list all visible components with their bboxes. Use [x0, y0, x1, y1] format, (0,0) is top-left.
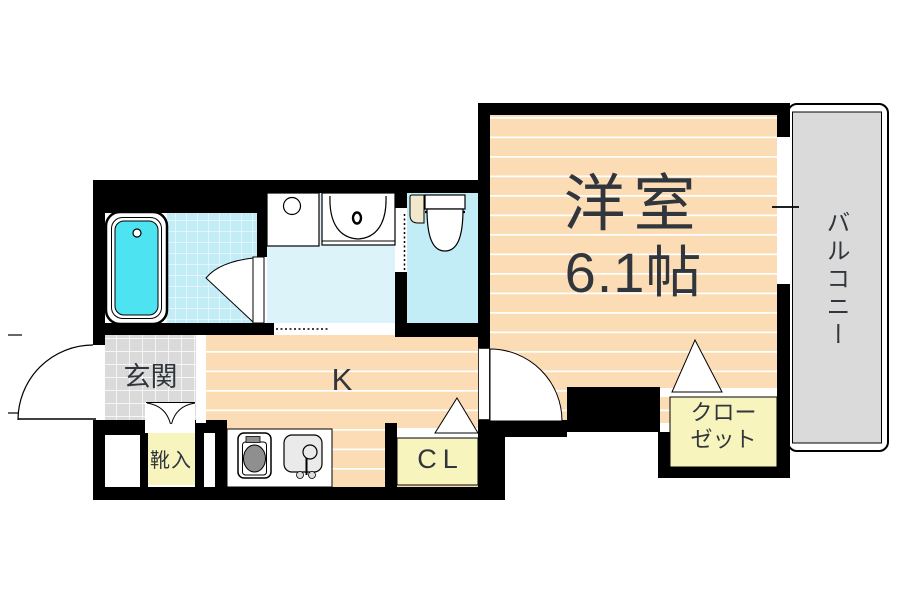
closet-label: クロー ゼット — [670, 399, 777, 453]
toilet-door-opening — [395, 208, 407, 272]
entry-side-space — [105, 433, 140, 487]
entrance-label: 玄関 — [105, 364, 196, 391]
front-door-opening — [93, 345, 105, 420]
entrance-step-strip — [196, 335, 206, 423]
balcony-label: バルコニー — [823, 160, 847, 400]
wash-basin — [322, 193, 395, 245]
kitchen-sink — [284, 435, 322, 479]
floor-plan: 洋室 6.1帖 バルコニー 玄関 K CL 靴入 クロー ゼット — [0, 0, 900, 600]
western-room-label: 洋室 6.1帖 — [490, 166, 777, 302]
hall-opening — [330, 323, 395, 335]
balcony-window-opening — [777, 137, 790, 284]
bathtub — [106, 212, 167, 324]
kitchen-label: K — [206, 364, 478, 395]
shoe-cabinet-doors — [145, 402, 195, 433]
cl-closet-label: CL — [397, 446, 478, 473]
western-room-size: 6.1帖 — [490, 244, 777, 302]
washing-machine-pan — [267, 193, 319, 246]
front-door-swing — [8, 335, 96, 420]
wall-slot — [204, 433, 215, 487]
shoe-box-label: 靴入 — [143, 451, 199, 471]
kitchen-counter — [227, 429, 332, 487]
western-room-name: 洋室 — [490, 166, 777, 244]
stove — [238, 433, 271, 478]
